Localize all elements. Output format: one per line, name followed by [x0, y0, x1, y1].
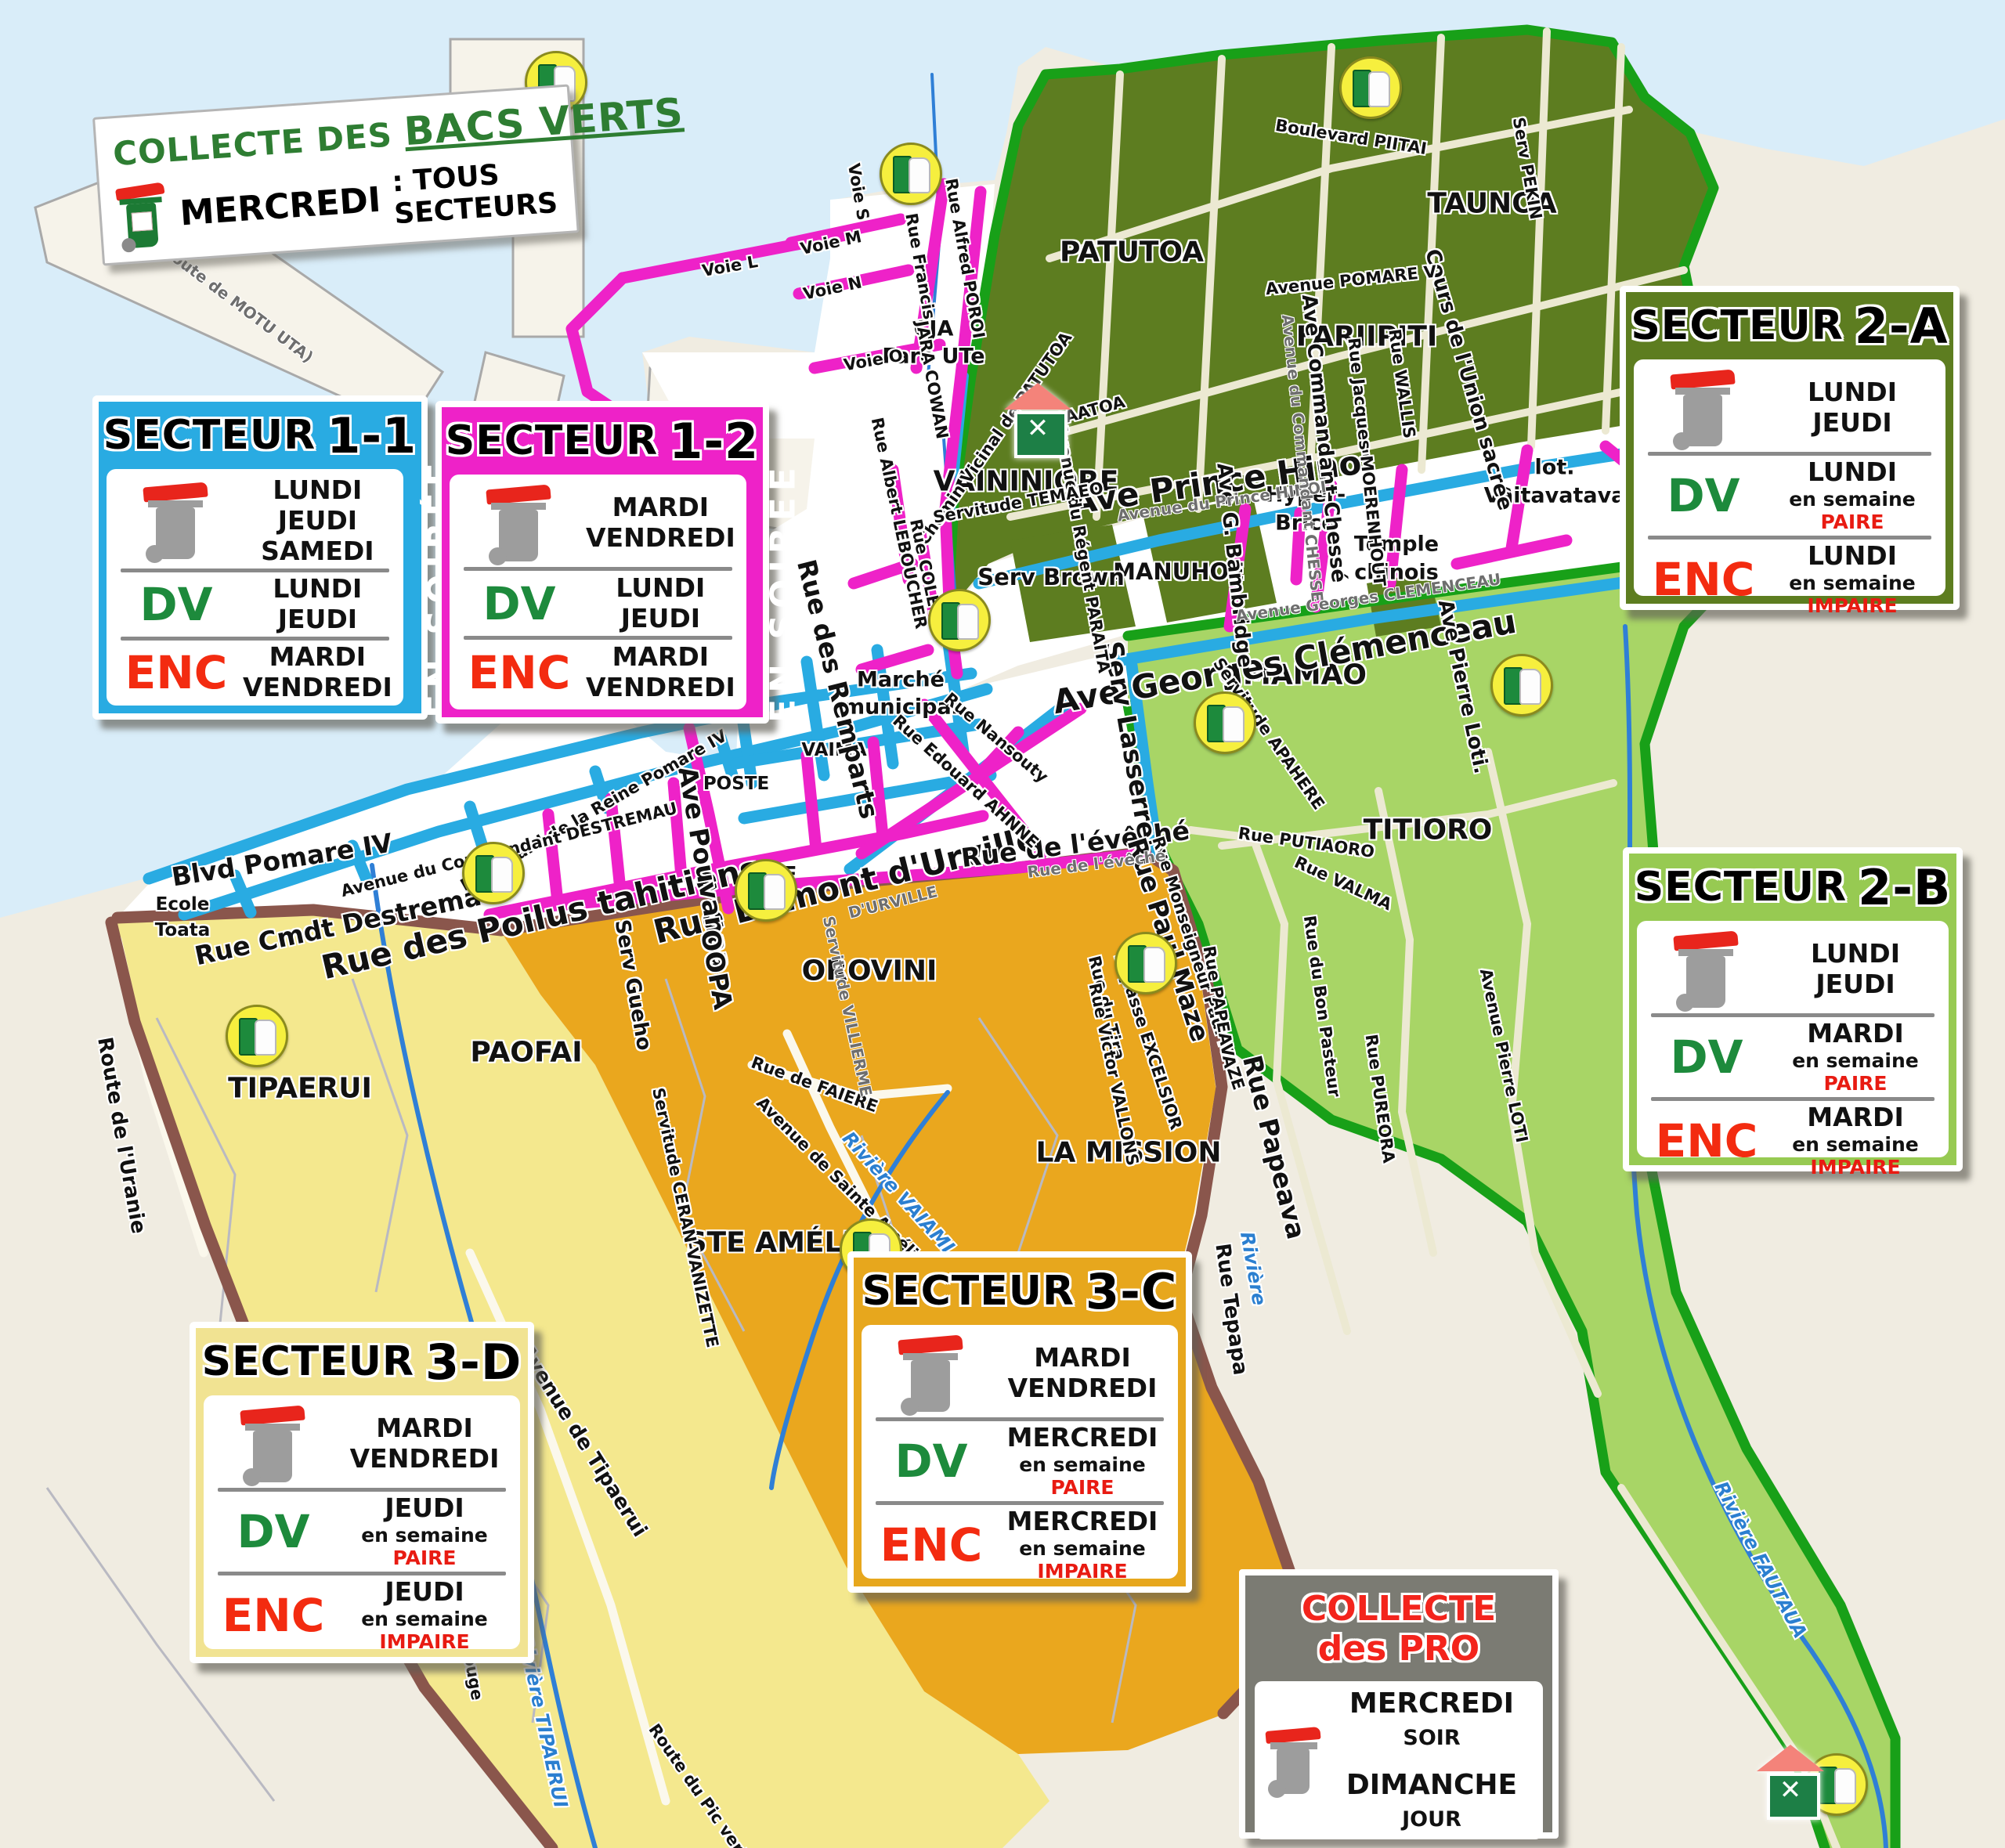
green-bin-icon [115, 179, 170, 253]
legend-sector-1-1: SECTEUR1-1 LUNDIJEUDISAMEDI DV LUNDIJEUD… [92, 395, 428, 720]
bin-days: LUNDIJEUDI [1770, 377, 1935, 439]
legend-sector-2-b: SECTEUR2-B LUNDIJEUDI DV MARDIen semaine… [1623, 847, 1963, 1171]
legend-title-rest: : TOUS SECTEURS [391, 155, 560, 231]
sector-2-b-title: SECTEUR2-B [1629, 854, 1956, 921]
enc-days: MARDIVENDREDI [586, 642, 735, 703]
sector-label: SECTEUR [1631, 302, 1843, 349]
sector-label: SECTEUR [103, 412, 316, 459]
pro-title: COLLECTEdes PRO [1245, 1575, 1552, 1677]
trash-bin-icon [486, 481, 552, 565]
bin-days: MARDIVENDREDI [586, 493, 735, 554]
enc-days: JEUDIen semaine IMPAIRE [340, 1577, 509, 1654]
enc-tag: ENC [222, 1593, 325, 1638]
bin-days: MARDIVENDREDI [340, 1413, 509, 1474]
sector-label: SECTEUR [446, 417, 658, 464]
legend-sector-3-d: SECTEUR3-D MARDIVENDREDI DV JEUDIen sema… [190, 1322, 534, 1663]
sector-1-2-title: SECTEUR1-2 [442, 407, 763, 475]
dv-tag: DV [237, 1509, 309, 1554]
enc-tag: ENC [1653, 557, 1755, 602]
sector-3-c-title: SECTEUR3-C [854, 1258, 1186, 1325]
dv-days: LUNDIJEUDI [243, 574, 392, 635]
legend-title-day: MERCREDI [179, 179, 382, 233]
trash-bin-icon [1671, 366, 1736, 450]
dv-days: JEUDIen semaine PAIRE [340, 1493, 509, 1570]
evening-strip: EN SOIRÉE [753, 475, 814, 709]
sector-label: SECTEUR [862, 1268, 1075, 1315]
trash-bin-icon [143, 478, 209, 563]
enc-tag: ENC [880, 1522, 983, 1568]
sector-number: 2-B [1858, 859, 1951, 916]
bin-days: LUNDIJEUDI [1773, 939, 1938, 1000]
dv-days: LUNDIen semaine PAIRE [1770, 457, 1935, 534]
dv-tag: DV [482, 581, 555, 626]
trash-bin-icon [1266, 1723, 1320, 1798]
enc-tag: ENC [1656, 1118, 1758, 1164]
dv-tag: DV [1670, 1034, 1743, 1080]
enc-days: MERCREDIen semaine IMPAIRE [998, 1507, 1167, 1583]
bin-days: LUNDIJEUDISAMEDI [243, 475, 392, 567]
enc-tag: ENC [125, 650, 228, 695]
sector-number: 1-1 [327, 407, 417, 464]
trash-bin-icon [898, 1331, 964, 1416]
sector-number: 3-D [425, 1334, 522, 1391]
collection-map-page: TAUNOAPATUTOAFARIIPITIVAININIOREMAMAOTIT… [0, 0, 2005, 1848]
trash-bin-icon [240, 1402, 306, 1486]
sector-label: SECTEUR [1635, 864, 1847, 911]
sector-2-a-title: SECTEUR2-A [1626, 292, 1953, 359]
legend-sector-1-2: SECTEUR1-2 MARDIVENDREDI DV LUNDIJEUDI E… [435, 401, 769, 724]
pro-row-1: MERCREDI SOIR [1331, 1687, 1532, 1752]
enc-tag: ENC [468, 650, 571, 695]
enc-days: LUNDIen semaine IMPAIRE [1770, 541, 1935, 618]
sector-number: 2-A [1855, 298, 1949, 355]
legend-title-prefix: COLLECTE DES [112, 115, 394, 173]
dv-days: MARDIen semaine PAIRE [1773, 1019, 1938, 1095]
legend-sector-3-c: SECTEUR3-C MARDIVENDREDI DV MERCREDIen s… [847, 1251, 1192, 1593]
dv-days: MERCREDIen semaine PAIRE [998, 1423, 1167, 1500]
sector-number: 3-C [1086, 1263, 1177, 1320]
trash-bin-icon [1674, 927, 1739, 1012]
sector-3-d-title: SECTEUR3-D [196, 1328, 528, 1395]
enc-days: MARDIen semaine IMPAIRE [1773, 1103, 1938, 1179]
sector-label: SECTEUR [202, 1338, 414, 1385]
dv-tag: DV [1667, 473, 1739, 518]
bin-days: MARDIVENDREDI [998, 1343, 1167, 1404]
legend-sector-2-a: SECTEUR2-A LUNDIJEUDI DV LUNDIen semaine… [1620, 286, 1960, 610]
enc-days: MARDIVENDREDI [243, 642, 392, 703]
sector-1-1-title: SECTEUR1-1 [99, 402, 421, 469]
pro-row-2: DIMANCHE JOUR [1331, 1769, 1532, 1833]
dv-tag: DV [139, 582, 212, 627]
sector-number: 1-2 [669, 413, 759, 470]
legend-pro-box: COLLECTEdes PRO MERCREDI SOIR DIMANCHE J… [1239, 1569, 1559, 1839]
dv-days: LUNDIJEUDI [586, 573, 735, 634]
dv-tag: DV [894, 1438, 967, 1484]
